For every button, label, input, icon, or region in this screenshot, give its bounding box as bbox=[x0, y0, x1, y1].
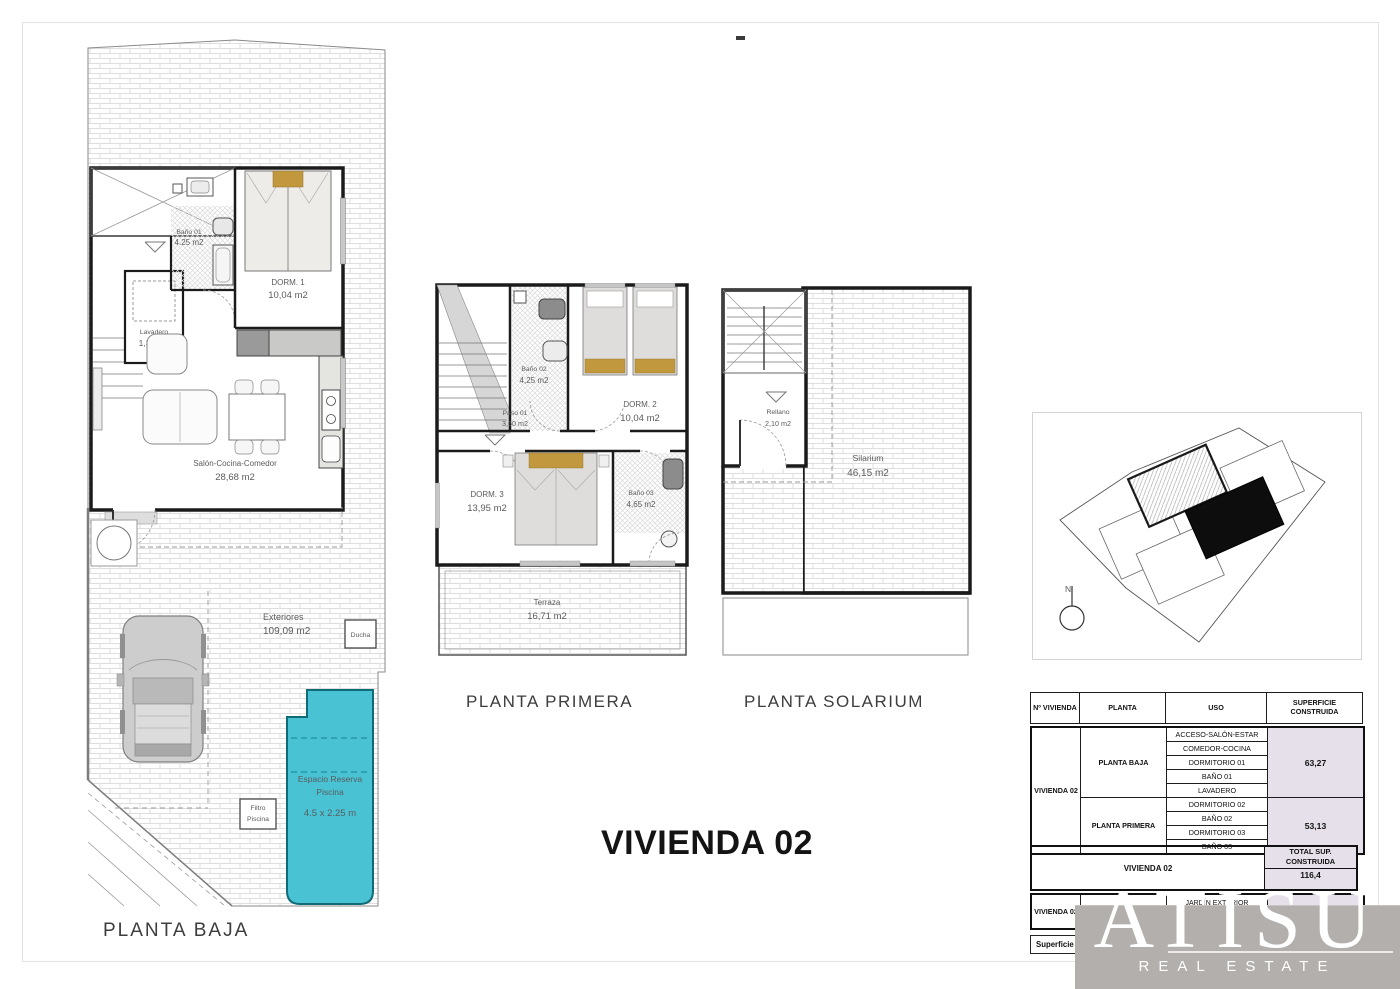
dining-table-icon bbox=[229, 394, 285, 440]
svg-text:Baño 02: Baño 02 bbox=[521, 366, 547, 373]
svg-text:Salón-Cocina-Comedor: Salón-Cocina-Comedor bbox=[193, 459, 277, 468]
svg-text:3,60 m2: 3,60 m2 bbox=[502, 419, 528, 428]
window bbox=[341, 358, 346, 428]
planta-baja-title: PLANTA BAJA bbox=[103, 920, 249, 942]
svg-text:Baño 01: Baño 01 bbox=[176, 229, 202, 236]
floorplan-planta-baja: Lavadero 1,33 m2 Baño 01 4.25 m2 DORM. 1 bbox=[85, 38, 403, 923]
svg-text:Espacio Reserva: Espacio Reserva bbox=[298, 774, 363, 784]
svg-text:10,04 m2: 10,04 m2 bbox=[268, 290, 308, 301]
svg-text:Filtro: Filtro bbox=[250, 805, 265, 812]
svg-text:Rellano: Rellano bbox=[766, 409, 789, 416]
top-mark bbox=[736, 36, 745, 40]
lower-patio bbox=[723, 466, 803, 593]
fridge-icon bbox=[237, 330, 269, 356]
pool-filter-box: Filtro Piscina bbox=[240, 799, 276, 829]
stove-icon bbox=[322, 390, 340, 430]
window bbox=[341, 198, 346, 264]
sink-icon bbox=[539, 299, 565, 319]
svg-text:4,65 m2: 4,65 m2 bbox=[627, 500, 656, 509]
tv-unit-icon bbox=[93, 368, 102, 430]
table-header: Nº VIVIENDA PLANTA USO SUPERFICIECONSTRU… bbox=[1030, 692, 1363, 724]
solarium-area bbox=[803, 288, 970, 593]
logo-wordmark: ATISU bbox=[1075, 878, 1400, 962]
svg-text:DORM. 2: DORM. 2 bbox=[623, 400, 657, 409]
svg-text:Silarium: Silarium bbox=[853, 453, 884, 463]
logo-rule bbox=[1168, 951, 1393, 953]
lower-terrace bbox=[723, 598, 968, 655]
car-icon bbox=[117, 616, 209, 762]
svg-text:13,95 m2: 13,95 m2 bbox=[467, 503, 507, 514]
washbasin-icon bbox=[173, 184, 182, 193]
site-plan: N bbox=[1032, 412, 1362, 660]
svg-text:Terraza: Terraza bbox=[534, 598, 561, 607]
armchair-icon bbox=[147, 334, 187, 374]
svg-text:4.5 x 2.25 m: 4.5 x 2.25 m bbox=[304, 808, 356, 819]
counter bbox=[269, 330, 341, 356]
svg-text:DORM. 3: DORM. 3 bbox=[470, 490, 504, 499]
plan-sheet: Lavadero 1,33 m2 Baño 01 4.25 m2 DORM. 1 bbox=[0, 0, 1400, 989]
svg-text:Baño 03: Baño 03 bbox=[628, 490, 654, 497]
svg-text:N: N bbox=[1065, 584, 1071, 594]
svg-text:109,09 m2: 109,09 m2 bbox=[263, 626, 311, 637]
table-row: VIVIENDA 02 PLANTA BAJA ACCESO-SALÓN-EST… bbox=[1031, 727, 1364, 742]
exteriores-label: Exteriores bbox=[263, 612, 304, 622]
svg-text:10,04 m2: 10,04 m2 bbox=[620, 413, 660, 424]
toilet-icon bbox=[213, 218, 233, 235]
table-row: PLANTA PRIMERA DORMITORIO 02 53,13 bbox=[1031, 798, 1364, 812]
svg-text:28,68 m2: 28,68 m2 bbox=[215, 472, 255, 483]
svg-text:Paso 01: Paso 01 bbox=[503, 410, 528, 417]
svg-text:4.25 m2: 4.25 m2 bbox=[175, 238, 204, 247]
outdoor-table bbox=[91, 520, 137, 566]
svg-text:Piscina: Piscina bbox=[247, 816, 269, 823]
svg-text:4,25 m2: 4,25 m2 bbox=[520, 376, 549, 385]
washbasin-icon bbox=[514, 291, 526, 303]
floorplan-planta-solarium: Rellano 2,10 m2 Silarium 46,15 m2 bbox=[718, 278, 980, 723]
svg-text:16,71 m2: 16,71 m2 bbox=[527, 611, 567, 622]
floorplan-planta-primera: Terraza 16,71 m2 Baño 02 4,25 m2 bbox=[435, 283, 690, 728]
planta-primera-title: PLANTA PRIMERA bbox=[466, 692, 633, 712]
pool: Espacio Reserva Piscina 4.5 x 2.25 m bbox=[287, 690, 373, 904]
svg-text:2,10 m2: 2,10 m2 bbox=[765, 419, 791, 428]
planta-solarium-title: PLANTA SOLARIUM bbox=[744, 692, 924, 712]
svg-text:46,15 m2: 46,15 m2 bbox=[847, 468, 889, 479]
svg-text:DORM. 1: DORM. 1 bbox=[271, 278, 305, 287]
shower-box: Ducha bbox=[345, 620, 376, 648]
table-body: VIVIENDA 02 PLANTA BAJA ACCESO-SALÓN-EST… bbox=[1030, 726, 1365, 855]
stair-tower: Rellano 2,10 m2 bbox=[723, 290, 806, 469]
logo-tagline: REAL ESTATE bbox=[1075, 958, 1400, 975]
sink-icon bbox=[663, 459, 683, 489]
svg-text:Ducha: Ducha bbox=[351, 632, 371, 639]
sink-icon bbox=[322, 436, 340, 462]
terrace: Terraza 16,71 m2 bbox=[439, 565, 686, 655]
sheet-title: VIVIENDA 02 bbox=[601, 824, 813, 863]
sink-icon bbox=[191, 181, 209, 193]
svg-text:Piscina: Piscina bbox=[316, 787, 344, 797]
toilet-icon bbox=[543, 341, 567, 361]
